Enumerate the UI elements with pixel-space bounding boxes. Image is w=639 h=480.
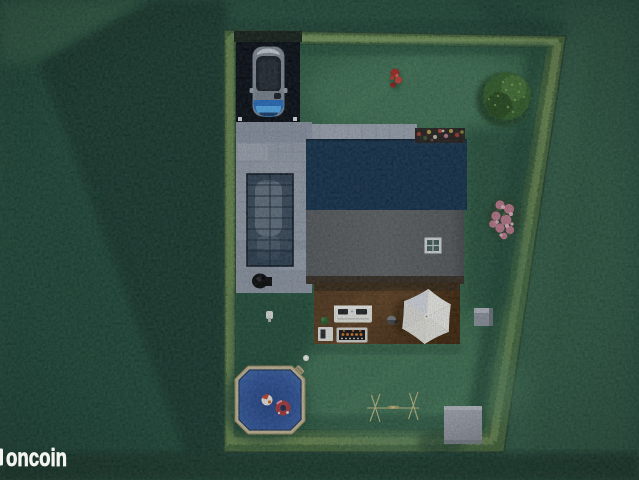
svg-text:oncoin: oncoin <box>6 444 67 472</box>
